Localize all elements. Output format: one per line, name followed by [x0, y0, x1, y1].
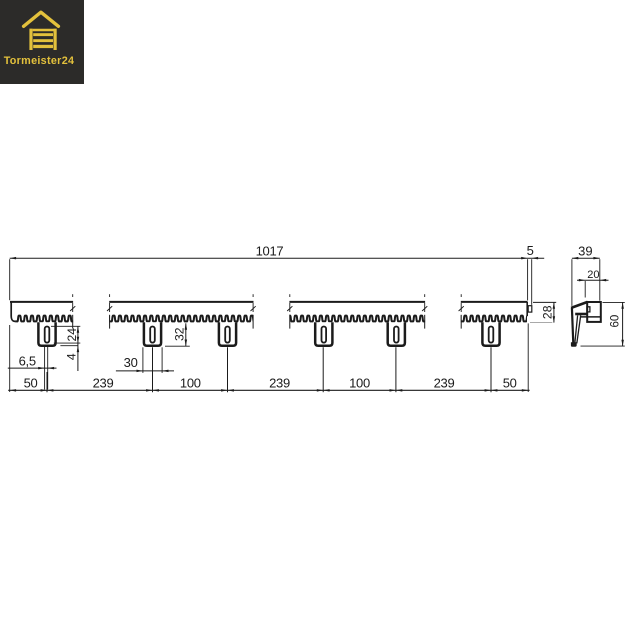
svg-text:239: 239: [93, 375, 114, 390]
svg-text:28: 28: [541, 305, 555, 319]
svg-text:32: 32: [172, 327, 186, 341]
svg-text:20: 20: [587, 269, 599, 281]
svg-text:30: 30: [124, 355, 138, 370]
svg-text:239: 239: [269, 375, 290, 390]
svg-text:24: 24: [65, 328, 79, 342]
svg-text:6,5: 6,5: [19, 353, 36, 368]
svg-text:1017: 1017: [256, 243, 284, 258]
svg-text:239: 239: [434, 375, 455, 390]
svg-text:100: 100: [349, 375, 370, 390]
svg-text:39: 39: [578, 244, 592, 259]
svg-text:5: 5: [527, 243, 534, 258]
svg-text:60: 60: [610, 315, 622, 328]
svg-text:50: 50: [24, 375, 38, 390]
svg-text:100: 100: [180, 375, 201, 390]
svg-text:50: 50: [503, 375, 517, 390]
svg-text:4: 4: [64, 353, 78, 360]
